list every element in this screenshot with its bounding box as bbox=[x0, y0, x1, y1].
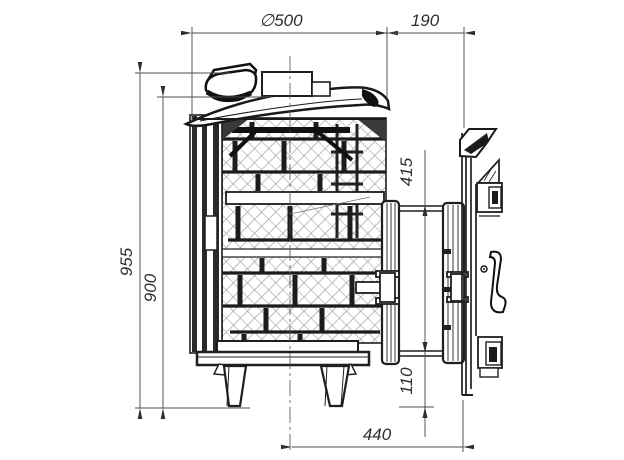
steam-damper bbox=[206, 64, 256, 101]
label-190: 190 bbox=[411, 11, 440, 30]
label-415: 415 bbox=[397, 157, 416, 186]
cage-band-lower bbox=[222, 249, 386, 257]
door-upper-hinge bbox=[477, 183, 502, 216]
stone-cage bbox=[222, 118, 386, 343]
legs bbox=[214, 364, 356, 406]
tunnel-clamp-right bbox=[447, 272, 468, 302]
cage-band-upper bbox=[226, 192, 384, 204]
base-plates bbox=[197, 341, 369, 365]
door-handle-lever bbox=[490, 252, 506, 313]
label-955: 955 bbox=[117, 247, 136, 276]
side-frame-column bbox=[190, 115, 222, 353]
latch-plate bbox=[205, 216, 217, 250]
stove-technical-drawing: ∅500 190 955 900 415 110 440 bbox=[0, 0, 624, 460]
handle-pivot-dot bbox=[483, 268, 485, 270]
chimney-outlet bbox=[262, 72, 330, 96]
label-440: 440 bbox=[363, 425, 392, 444]
label-900: 900 bbox=[141, 273, 160, 302]
dimension-190 bbox=[387, 27, 464, 128]
tunnel-tube bbox=[399, 206, 443, 356]
door-lower-hinge bbox=[478, 337, 502, 377]
door-assembly bbox=[460, 129, 506, 395]
label-diameter-500: ∅500 bbox=[259, 11, 303, 30]
drawing-page: ∅500 190 955 900 415 110 440 bbox=[0, 0, 624, 460]
label-110: 110 bbox=[397, 367, 416, 395]
